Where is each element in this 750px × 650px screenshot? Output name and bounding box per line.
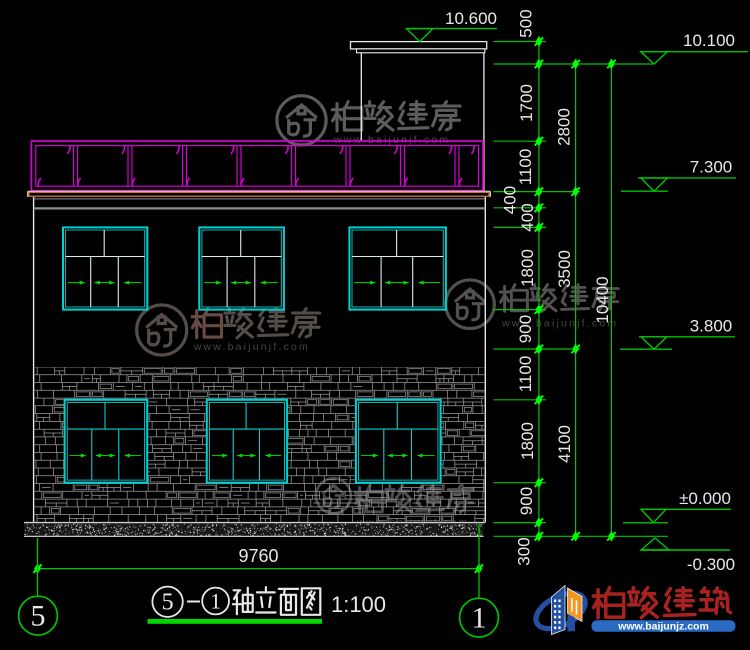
svg-text:1700: 1700 [517, 84, 536, 122]
svg-text:3.800: 3.800 [690, 316, 733, 335]
svg-text:9760: 9760 [238, 546, 278, 566]
svg-text:1800: 1800 [518, 249, 537, 287]
svg-text:5: 5 [31, 600, 46, 633]
svg-text:10.600: 10.600 [445, 9, 497, 28]
svg-text:3500: 3500 [555, 250, 574, 288]
svg-text:300: 300 [515, 537, 534, 565]
svg-text:1100: 1100 [516, 356, 535, 393]
svg-text:www.baijunjf.com: www.baijunjf.com [333, 134, 450, 146]
svg-text:www.baijunjz.com: www.baijunjz.com [617, 621, 709, 633]
svg-text:7.300: 7.300 [690, 157, 733, 176]
svg-text:2800: 2800 [555, 108, 574, 146]
svg-text:4100: 4100 [555, 425, 574, 463]
svg-text:10400: 10400 [593, 276, 612, 323]
svg-text:1800: 1800 [518, 422, 537, 460]
svg-text:5: 5 [162, 590, 174, 616]
svg-text:400: 400 [501, 186, 520, 214]
svg-text:10.100: 10.100 [683, 31, 735, 50]
svg-text:500: 500 [517, 9, 536, 37]
svg-text:1: 1 [472, 602, 487, 635]
svg-text:www.baijunjf.com: www.baijunjf.com [193, 341, 310, 353]
svg-text:900: 900 [517, 487, 536, 515]
svg-text:-0.300: -0.300 [687, 555, 735, 574]
svg-text:±0.000: ±0.000 [679, 489, 731, 508]
svg-text:1100: 1100 [516, 149, 535, 186]
svg-text:400: 400 [518, 203, 537, 231]
svg-text:1: 1 [210, 589, 221, 614]
svg-text:1:100: 1:100 [331, 592, 386, 617]
svg-text:900: 900 [516, 315, 535, 343]
